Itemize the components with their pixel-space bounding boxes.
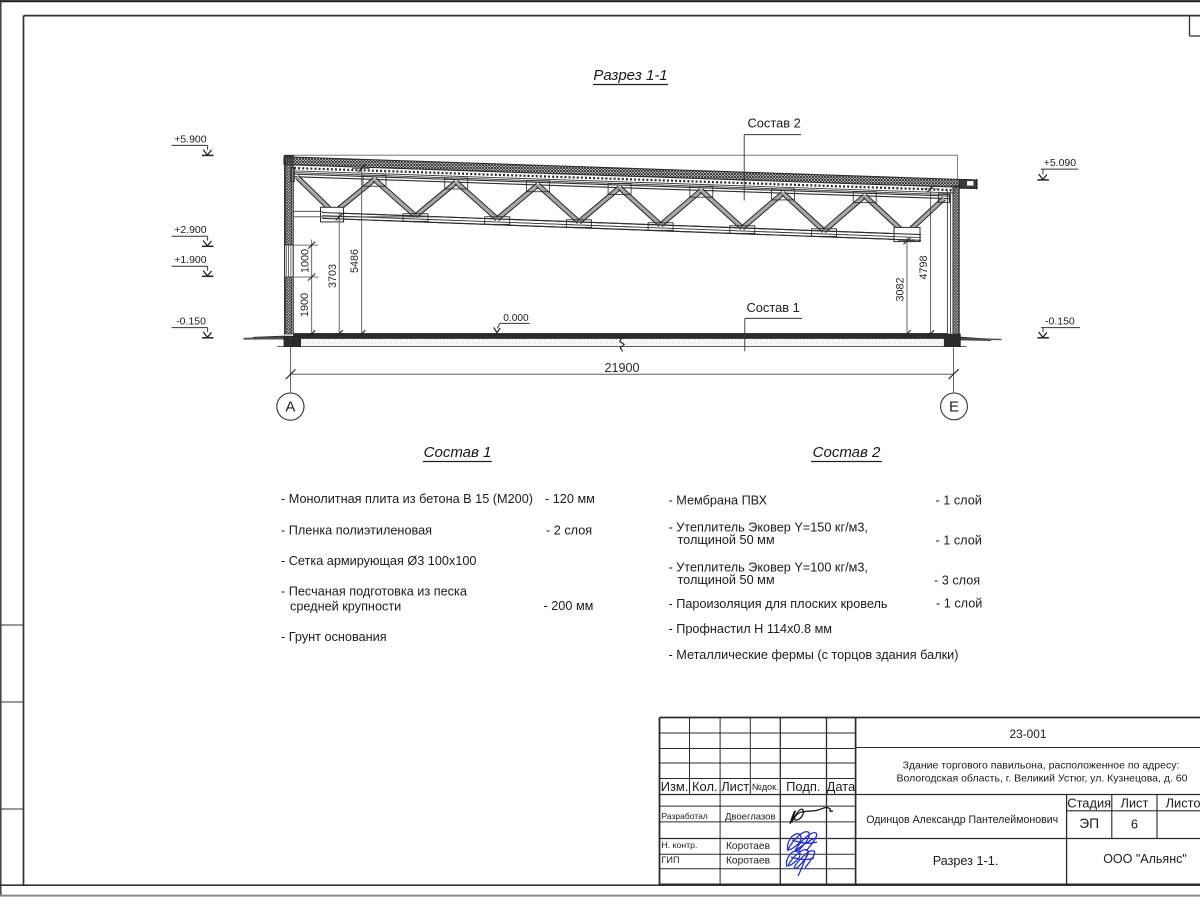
svg-text:-0.150: -0.150	[176, 316, 206, 328]
svg-text:Лист: Лист	[1120, 796, 1148, 811]
svg-text:А: А	[285, 399, 295, 416]
svg-text:Стадия: Стадия	[1067, 796, 1111, 811]
svg-text:средней крупности: средней крупности	[290, 600, 401, 614]
svg-text:- Пароизоляция для плоских кро: - Пароизоляция для плоских кровель	[669, 597, 888, 611]
svg-text:Вологодская область, г. Велики: Вологодская область, г. Великий Устюг, у…	[897, 773, 1188, 785]
svg-text:- 120 мм: - 120 мм	[545, 492, 595, 506]
svg-text:Коротаев: Коротаев	[726, 841, 770, 852]
svg-text:- Монолитная плита из бетона В: - Монолитная плита из бетона В 15 (М200)	[281, 492, 533, 506]
svg-text:ЭП: ЭП	[1079, 816, 1099, 831]
svg-text:№док.: №док.	[752, 782, 779, 792]
svg-text:- 3 слоя: - 3 слоя	[934, 574, 980, 588]
svg-text:+5.900: +5.900	[174, 133, 207, 145]
svg-text:Здание торгового павильона, ра: Здание торгового павильона, расположенно…	[903, 759, 1180, 771]
svg-text:0.000: 0.000	[503, 313, 529, 324]
svg-text:- Песчаная подготовка из песка: - Песчаная подготовка из песка	[281, 584, 468, 598]
svg-text:1900: 1900	[299, 293, 311, 317]
svg-text:- Грунт основания: - Грунт основания	[281, 630, 387, 644]
svg-text:ГИП: ГИП	[662, 855, 680, 865]
svg-text:Разрез 1-1.: Разрез 1-1.	[933, 854, 999, 868]
svg-text:Лист: Лист	[721, 779, 749, 794]
svg-text:- 1 слой: - 1 слой	[936, 534, 982, 548]
svg-text:Кол.: Кол.	[692, 779, 718, 794]
svg-text:Двоеглазов: Двоеглазов	[725, 811, 776, 822]
svg-text:толщиной 50 мм: толщиной 50 мм	[678, 533, 775, 547]
svg-text:6: 6	[1131, 816, 1138, 831]
svg-text:4798: 4798	[918, 255, 930, 279]
svg-text:- 200 мм: - 200 мм	[544, 599, 594, 613]
svg-text:- Мембрана ПВХ: - Мембрана ПВХ	[669, 494, 768, 508]
svg-text:Е: Е	[949, 398, 959, 415]
svg-text:Состав 1: Состав 1	[747, 300, 800, 315]
svg-text:ООО "Альянс": ООО "Альянс"	[1103, 852, 1187, 866]
svg-text:Состав 2: Состав 2	[813, 444, 881, 461]
svg-text:- Сетка армирующая Ø3 100х100: - Сетка армирующая Ø3 100х100	[281, 554, 477, 568]
svg-text:толщиной 50 мм: толщиной 50 мм	[678, 573, 775, 587]
svg-text:21900: 21900	[604, 361, 639, 375]
svg-text:- Пленка полиэтиленовая: - Пленка полиэтиленовая	[281, 524, 432, 538]
svg-text:23-001: 23-001	[1009, 727, 1046, 741]
svg-text:+5.090: +5.090	[1044, 157, 1077, 169]
svg-text:Листов: Листов	[1166, 796, 1200, 811]
svg-text:Разрез 1-1: Разрез 1-1	[593, 67, 667, 84]
svg-text:Дата: Дата	[827, 779, 856, 794]
svg-text:Разработал: Разработал	[662, 811, 708, 821]
svg-text:Состав 2: Состав 2	[748, 115, 801, 130]
svg-text:Н. контр.: Н. контр.	[662, 840, 698, 850]
svg-text:- 1 слой: - 1 слой	[936, 596, 982, 610]
svg-text:Состав 1: Состав 1	[424, 444, 492, 461]
svg-text:- Металлические фермы (с торцо: - Металлические фермы (с торцов здания б…	[669, 648, 959, 662]
svg-text:Одинцов Александр Пантелеймоно: Одинцов Александр Пантелеймонович	[866, 814, 1058, 826]
svg-text:1000: 1000	[299, 249, 311, 273]
svg-text:- 1 слой: - 1 слой	[936, 494, 982, 508]
svg-text:- Профнастил Н 114х0.8 мм: - Профнастил Н 114х0.8 мм	[669, 622, 833, 636]
svg-text:5486: 5486	[349, 249, 361, 273]
svg-text:Подп.: Подп.	[786, 779, 820, 794]
svg-text:- 2 слоя: - 2 слоя	[546, 524, 592, 538]
svg-text:+1.900: +1.900	[174, 254, 207, 266]
svg-text:3082: 3082	[895, 277, 907, 301]
svg-text:+2.900: +2.900	[174, 224, 207, 236]
svg-text:3703: 3703	[327, 264, 339, 288]
svg-text:-0.150: -0.150	[1045, 316, 1075, 328]
svg-text:Коротаев: Коротаев	[726, 856, 770, 867]
svg-text:Изм.: Изм.	[661, 779, 689, 794]
